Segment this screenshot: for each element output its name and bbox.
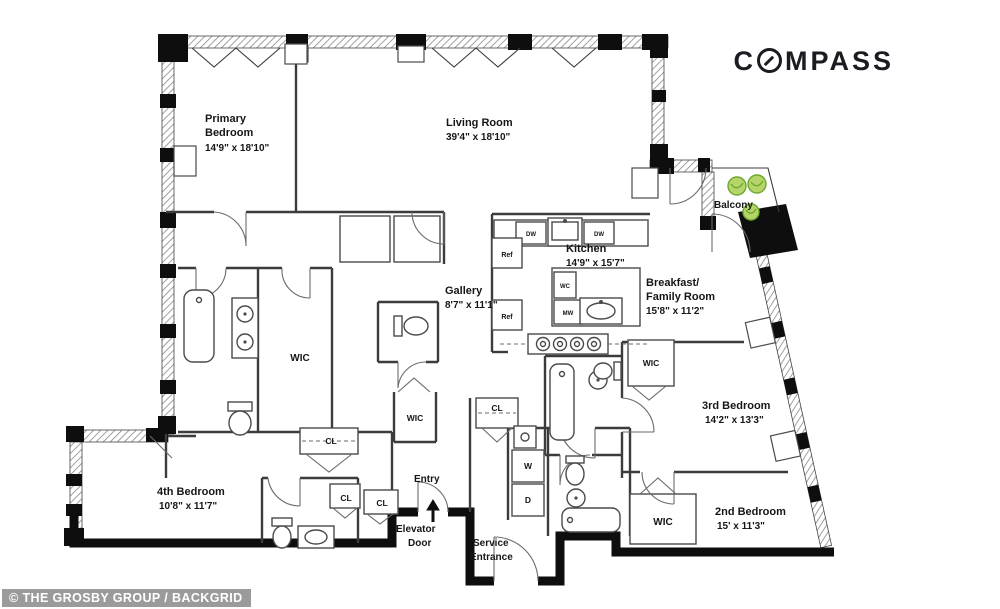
room-label-third-bedroom: 3rd Bedroom: [702, 400, 771, 412]
room-label-primary-bedroom-2: Bedroom: [205, 127, 254, 139]
room-dims-primary-bedroom: 14'9" x 18'10": [205, 143, 270, 154]
bathtub-icon: [184, 290, 214, 362]
room-dims-living-room: 39'4" x 18'10": [446, 132, 511, 143]
label-cl-2: CL: [340, 493, 351, 503]
sink-icon: [298, 526, 334, 548]
label-mw: MW: [563, 311, 574, 317]
vanity-sinks-icon: [232, 298, 258, 358]
room-dims-second-bedroom: 15' x 11'3": [717, 521, 765, 532]
compass-logo: CMPASS: [733, 48, 894, 73]
room-dims-kitchen: 14'9" x 15'7": [566, 258, 625, 269]
room-label-living-room: Living Room: [446, 117, 513, 129]
label-wic-primary: WIC: [290, 353, 309, 364]
room-label-breakfast-2: Family Room: [646, 291, 715, 303]
label-wic-hall: WIC: [407, 413, 424, 423]
label-ref-2: Ref: [501, 314, 513, 321]
label-cl-1: CL: [325, 436, 336, 446]
label-wic-third: WIC: [643, 358, 660, 368]
compass-logo-prefix: C: [733, 49, 756, 73]
label-ref-1: Ref: [501, 252, 513, 259]
label-dryer: D: [525, 495, 531, 505]
elevator-arrow-icon: [427, 500, 439, 522]
room-dims-third-bedroom: 14'2" x 13'3": [705, 415, 764, 426]
label-dw-2: DW: [594, 232, 604, 238]
compass-logo-o-icon: [757, 48, 782, 73]
label-dw-1: DW: [526, 232, 536, 238]
room-label-kitchen: Kitchen: [566, 243, 607, 255]
compass-logo-suffix: MPASS: [785, 49, 894, 73]
toilet-icon: [394, 316, 428, 336]
kitchen-island-icon: [552, 268, 640, 326]
label-cl-3: CL: [376, 498, 387, 508]
label-cl-4: CL: [491, 403, 502, 413]
floor-plan-page: Primary Bedroom 14'9" x 18'10" Living Ro…: [0, 0, 1000, 609]
label-service-entrance: Service: [473, 538, 509, 549]
toilet-icon: [228, 402, 252, 435]
room-label-breakfast: Breakfast/: [646, 277, 699, 289]
room-label-balcony: Balcony: [714, 200, 753, 211]
floor-plan: Primary Bedroom 14'9" x 18'10" Living Ro…: [0, 0, 1000, 609]
bathtub-icon: [550, 364, 574, 440]
label-wc: WC: [560, 284, 571, 290]
room-label-second-bedroom: 2nd Bedroom: [715, 506, 786, 518]
sink-icon: [567, 489, 585, 507]
room-dims-breakfast: 15'8" x 11'2": [646, 306, 704, 317]
room-label-fourth-bedroom: 4th Bedroom: [157, 486, 225, 498]
label-service-entrance-2: Entrance: [470, 552, 513, 563]
room-dims-fourth-bedroom: 10'8" x 11'7": [159, 501, 217, 512]
toilet-icon: [594, 362, 621, 380]
fixtures: [184, 175, 766, 548]
watermark: © THE GROSBY GROUP / BACKGRID: [2, 589, 251, 607]
label-washer: W: [524, 461, 533, 471]
room-label-entry: Entry: [414, 474, 440, 485]
toilet-icon: [272, 518, 292, 548]
bathtub-icon: [562, 508, 620, 532]
label-elevator-door-2: Door: [408, 538, 431, 549]
label-elevator-door: Elevator: [396, 524, 436, 535]
stove-icon: [500, 334, 648, 354]
diagonal-window-wall: [726, 229, 831, 553]
label-wic-second: WIC: [653, 517, 672, 528]
room-label-primary-bedroom: Primary: [205, 113, 247, 125]
outer-walls: [74, 168, 834, 581]
bay-windows: [174, 46, 658, 198]
room-dims-gallery: 8'7" x 11'1": [445, 300, 498, 311]
toilet-icon: [566, 456, 584, 485]
room-label-gallery: Gallery: [445, 285, 483, 297]
